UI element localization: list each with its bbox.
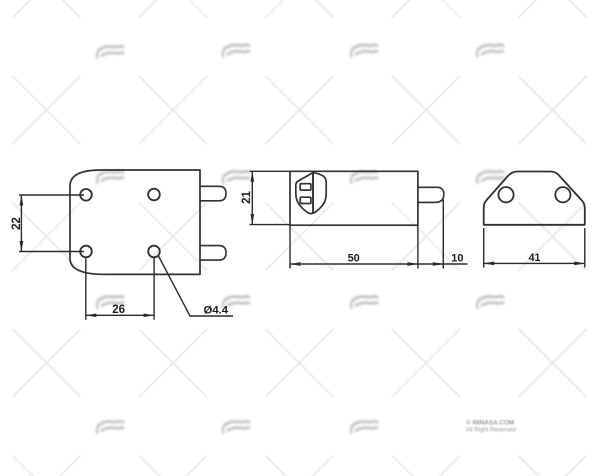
svg-text:Ø4.4: Ø4.4 [204,305,229,317]
svg-text:50: 50 [348,253,360,265]
svg-text:22: 22 [11,217,23,230]
svg-text:21: 21 [241,191,253,204]
svg-text:26: 26 [112,304,125,316]
svg-text:10: 10 [451,253,463,265]
svg-text:41: 41 [529,252,541,264]
svg-text:© IMNASA.COM: © IMNASA.COM [466,419,514,427]
svg-text:All Right Reserved: All Right Reserved [466,428,516,434]
